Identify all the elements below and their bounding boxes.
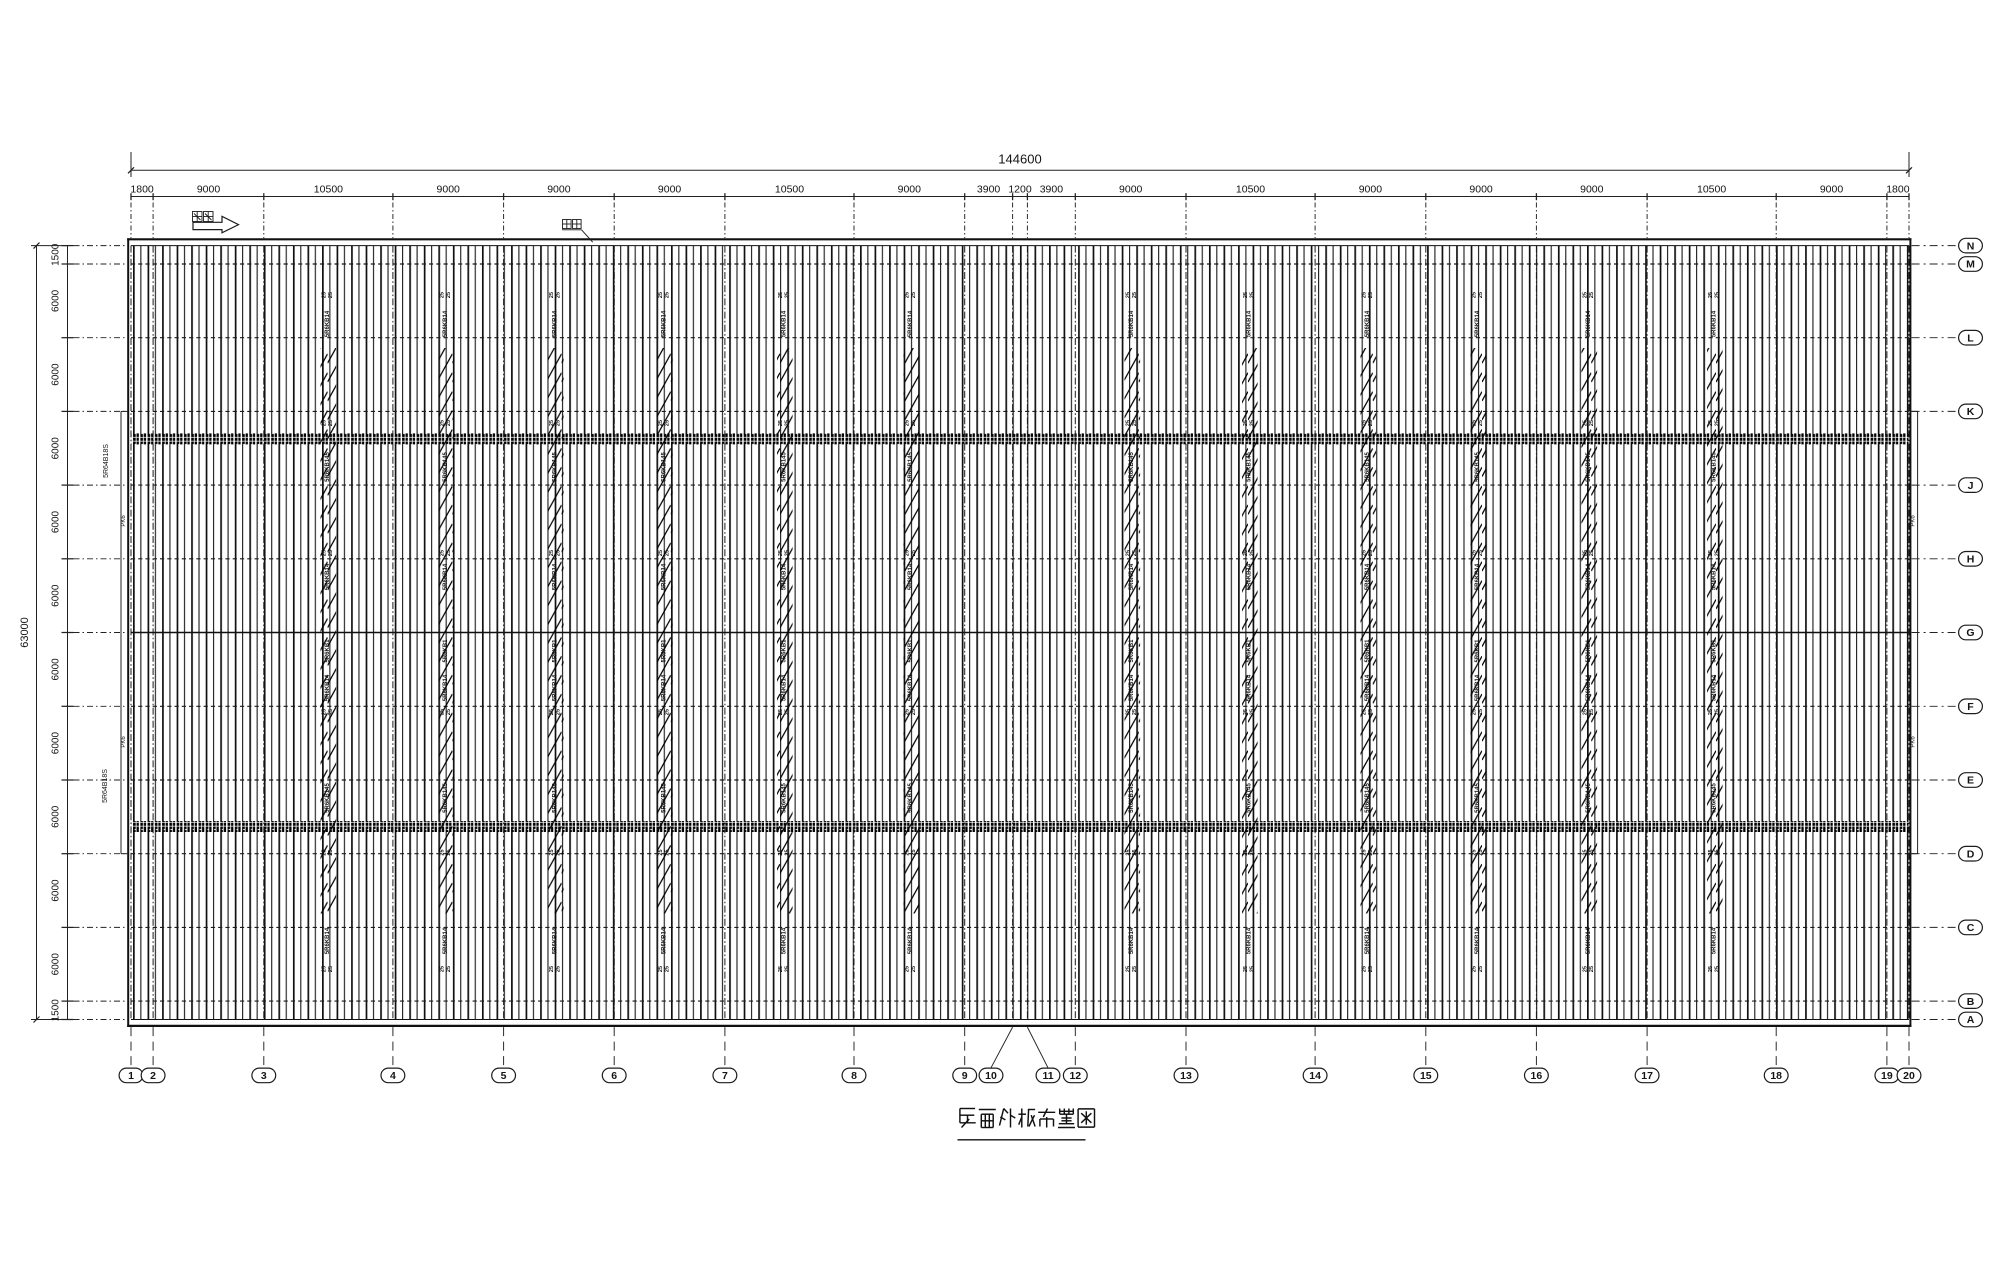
- svg-text:8: 8: [851, 1070, 857, 1082]
- svg-text:5R6KB145: 5R6KB145: [1365, 451, 1371, 481]
- svg-text:25: 25: [1715, 550, 1721, 556]
- svg-text:25: 25: [1478, 709, 1484, 715]
- svg-text:25: 25: [1589, 849, 1595, 855]
- svg-text:25: 25: [778, 849, 784, 855]
- svg-text:25: 25: [549, 420, 555, 426]
- svg-text:25: 25: [911, 420, 917, 426]
- svg-text:5R6KB14: 5R6KB14: [552, 310, 558, 337]
- svg-text:5R6KB14: 5R6KB14: [1365, 927, 1371, 954]
- svg-text:5R6KB145: 5R6KB145: [1246, 451, 1252, 481]
- svg-text:5R6KB14: 5R6KB14: [325, 563, 331, 590]
- svg-text:6000: 6000: [51, 953, 62, 976]
- svg-text:9000: 9000: [547, 184, 571, 196]
- svg-text:25: 25: [1126, 420, 1132, 426]
- svg-text:25: 25: [1708, 550, 1714, 556]
- svg-text:5R6KB145: 5R6KB145: [1129, 782, 1135, 812]
- svg-text:5R6KB14: 5R6KB14: [1475, 310, 1481, 337]
- svg-text:25: 25: [1126, 849, 1132, 855]
- svg-text:25: 25: [556, 420, 562, 426]
- svg-text:25: 25: [778, 709, 784, 715]
- svg-text:5R6KB14: 5R6KB14: [908, 563, 914, 590]
- svg-text:25: 25: [1250, 709, 1256, 715]
- svg-text:25: 25: [1472, 420, 1478, 426]
- svg-text:5R6KB145: 5R6KB145: [443, 782, 449, 812]
- svg-text:25: 25: [446, 420, 452, 426]
- svg-text:5R6KB1: 5R6KB1: [1586, 639, 1592, 663]
- svg-text:144600: 144600: [998, 152, 1041, 167]
- svg-text:25: 25: [440, 966, 446, 972]
- svg-text:25: 25: [328, 550, 334, 556]
- svg-text:5R6KB14: 5R6KB14: [552, 563, 558, 590]
- svg-text:9000: 9000: [658, 184, 682, 196]
- svg-text:5R6KB14: 5R6KB14: [1475, 927, 1481, 954]
- svg-text:5R6KB14: 5R6KB14: [1711, 563, 1717, 590]
- svg-text:25: 25: [1368, 709, 1374, 715]
- svg-text:5R6KB145: 5R6KB145: [1475, 782, 1481, 812]
- svg-text:5R6KB14: 5R6KB14: [781, 563, 787, 590]
- svg-text:6000: 6000: [51, 879, 62, 902]
- svg-text:25: 25: [665, 420, 671, 426]
- svg-text:25: 25: [1132, 292, 1138, 298]
- svg-text:25: 25: [778, 550, 784, 556]
- svg-text:63000: 63000: [19, 617, 31, 648]
- svg-text:25: 25: [1368, 420, 1374, 426]
- svg-text:25: 25: [1243, 709, 1249, 715]
- svg-text:H: H: [1967, 554, 1975, 566]
- svg-text:5R6KB145: 5R6KB145: [661, 451, 667, 481]
- svg-text:25: 25: [658, 966, 664, 972]
- svg-text:25: 25: [1583, 550, 1589, 556]
- svg-text:5R6KB14: 5R6KB14: [1711, 674, 1717, 701]
- svg-text:5R6KB14: 5R6KB14: [661, 674, 667, 701]
- svg-text:25: 25: [1583, 292, 1589, 298]
- svg-text:25: 25: [1589, 420, 1595, 426]
- svg-text:25: 25: [446, 550, 452, 556]
- svg-text:1500: 1500: [51, 999, 62, 1022]
- svg-text:25: 25: [556, 292, 562, 298]
- svg-text:10500: 10500: [775, 184, 804, 196]
- svg-text:25: 25: [785, 550, 791, 556]
- svg-text:6000: 6000: [51, 289, 62, 312]
- svg-text:5R6KB14: 5R6KB14: [552, 927, 558, 954]
- svg-text:M: M: [1966, 259, 1975, 271]
- svg-text:17: 17: [1641, 1070, 1653, 1082]
- svg-text:5R6KB14: 5R6KB14: [908, 674, 914, 701]
- svg-text:25: 25: [665, 550, 671, 556]
- svg-text:18: 18: [1770, 1070, 1782, 1082]
- svg-text:6000: 6000: [51, 437, 62, 460]
- svg-text:25: 25: [1368, 550, 1374, 556]
- svg-text:25: 25: [1243, 966, 1249, 972]
- svg-text:25: 25: [1715, 709, 1721, 715]
- svg-text:5R6KB1: 5R6KB1: [1129, 639, 1135, 663]
- svg-text:25: 25: [1589, 709, 1595, 715]
- svg-text:25: 25: [446, 849, 452, 855]
- svg-text:5R6KB145: 5R6KB145: [325, 782, 331, 812]
- svg-text:5R6KB145: 5R6KB145: [1586, 782, 1592, 812]
- svg-text:5R6KB14: 5R6KB14: [781, 674, 787, 701]
- svg-text:7: 7: [722, 1070, 728, 1082]
- svg-text:25: 25: [658, 292, 664, 298]
- svg-text:25: 25: [785, 420, 791, 426]
- svg-text:5R6KB145: 5R6KB145: [661, 782, 667, 812]
- svg-text:PK6: PK6: [1911, 515, 1917, 527]
- svg-text:25: 25: [1250, 966, 1256, 972]
- svg-text:25: 25: [1583, 966, 1589, 972]
- svg-text:9000: 9000: [437, 184, 461, 196]
- svg-text:25: 25: [549, 292, 555, 298]
- svg-text:6000: 6000: [51, 510, 62, 533]
- svg-text:25: 25: [905, 849, 911, 855]
- svg-text:25: 25: [778, 966, 784, 972]
- svg-text:11: 11: [1042, 1070, 1053, 1082]
- svg-text:L: L: [1967, 332, 1974, 344]
- svg-text:9000: 9000: [1469, 184, 1493, 196]
- svg-text:K: K: [1967, 406, 1975, 418]
- svg-text:25: 25: [322, 420, 328, 426]
- svg-text:25: 25: [1589, 550, 1595, 556]
- svg-text:25: 25: [1126, 966, 1132, 972]
- svg-text:25: 25: [911, 849, 917, 855]
- svg-text:5R6KB1: 5R6KB1: [781, 639, 787, 663]
- svg-text:5R6KB14: 5R6KB14: [1586, 563, 1592, 590]
- svg-text:C: C: [1967, 922, 1975, 934]
- svg-text:25: 25: [785, 292, 791, 298]
- svg-text:25: 25: [1478, 420, 1484, 426]
- svg-text:25: 25: [1362, 709, 1368, 715]
- svg-text:25: 25: [1478, 849, 1484, 855]
- svg-text:D: D: [1967, 848, 1975, 860]
- svg-text:25: 25: [556, 966, 562, 972]
- svg-text:25: 25: [440, 292, 446, 298]
- svg-text:25: 25: [556, 550, 562, 556]
- svg-text:25: 25: [1132, 550, 1138, 556]
- svg-text:5R6KB145: 5R6KB145: [1246, 782, 1252, 812]
- svg-text:4: 4: [390, 1070, 396, 1082]
- svg-text:25: 25: [556, 849, 562, 855]
- svg-text:6000: 6000: [51, 732, 62, 755]
- svg-text:25: 25: [1362, 420, 1368, 426]
- svg-text:25: 25: [1715, 966, 1721, 972]
- svg-text:25: 25: [911, 292, 917, 298]
- svg-text:25: 25: [1589, 292, 1595, 298]
- svg-text:20: 20: [1903, 1070, 1915, 1082]
- svg-text:25: 25: [322, 292, 328, 298]
- svg-text:5R6KB145: 5R6KB145: [908, 451, 914, 481]
- svg-text:25: 25: [1472, 292, 1478, 298]
- svg-text:5R6KB145: 5R6KB145: [443, 451, 449, 481]
- svg-text:PK6: PK6: [1911, 736, 1917, 748]
- svg-text:25: 25: [1250, 550, 1256, 556]
- svg-text:25: 25: [1243, 292, 1249, 298]
- svg-text:25: 25: [1472, 709, 1478, 715]
- svg-text:14: 14: [1309, 1070, 1321, 1082]
- svg-text:25: 25: [1243, 420, 1249, 426]
- svg-text:25: 25: [665, 966, 671, 972]
- svg-text:25: 25: [665, 849, 671, 855]
- svg-text:G: G: [1966, 627, 1974, 639]
- svg-text:25: 25: [911, 709, 917, 715]
- svg-text:25: 25: [446, 292, 452, 298]
- svg-text:25: 25: [1472, 550, 1478, 556]
- svg-text:J: J: [1968, 480, 1974, 492]
- svg-text:6000: 6000: [51, 805, 62, 828]
- svg-text:25: 25: [556, 709, 562, 715]
- svg-text:9000: 9000: [197, 184, 221, 196]
- svg-text:25: 25: [1132, 849, 1138, 855]
- svg-text:25: 25: [322, 849, 328, 855]
- svg-text:25: 25: [658, 709, 664, 715]
- svg-text:5R6KB145: 5R6KB145: [552, 782, 558, 812]
- svg-text:25: 25: [549, 550, 555, 556]
- svg-text:25: 25: [328, 849, 334, 855]
- svg-text:25: 25: [549, 966, 555, 972]
- svg-text:5R6KB145: 5R6KB145: [1475, 451, 1481, 481]
- svg-text:10500: 10500: [1697, 184, 1726, 196]
- svg-text:5R6KB1: 5R6KB1: [443, 639, 449, 663]
- svg-text:PK6: PK6: [121, 515, 127, 527]
- svg-text:5R6KB1: 5R6KB1: [1475, 639, 1481, 663]
- svg-text:5R6KB1: 5R6KB1: [1246, 639, 1252, 663]
- svg-text:5R6KB1: 5R6KB1: [325, 639, 331, 663]
- svg-text:25: 25: [328, 420, 334, 426]
- svg-text:25: 25: [322, 709, 328, 715]
- svg-text:5R6KB14: 5R6KB14: [661, 563, 667, 590]
- svg-text:25: 25: [905, 292, 911, 298]
- svg-text:5R6KB145: 5R6KB145: [1129, 451, 1135, 481]
- svg-text:25: 25: [905, 550, 911, 556]
- svg-text:5R6KB14: 5R6KB14: [1711, 927, 1717, 954]
- svg-text:25: 25: [328, 709, 334, 715]
- svg-text:25: 25: [1362, 849, 1368, 855]
- svg-text:25: 25: [1478, 966, 1484, 972]
- svg-text:5R6KB145: 5R6KB145: [1586, 451, 1592, 481]
- svg-text:1200: 1200: [1008, 184, 1032, 196]
- svg-text:25: 25: [1708, 849, 1714, 855]
- svg-text:25: 25: [1132, 966, 1138, 972]
- svg-text:5R6KB14: 5R6KB14: [661, 927, 667, 954]
- svg-text:5R6KB145: 5R6KB145: [1711, 451, 1717, 481]
- svg-text:5R64B18S: 5R64B18S: [102, 769, 109, 803]
- svg-text:5R6KB14: 5R6KB14: [443, 927, 449, 954]
- svg-text:25: 25: [658, 420, 664, 426]
- svg-text:5R64B18S: 5R64B18S: [103, 444, 110, 478]
- svg-text:5R6KB14: 5R6KB14: [1129, 927, 1135, 954]
- svg-text:5R6KB1: 5R6KB1: [1711, 639, 1717, 663]
- svg-text:5: 5: [501, 1070, 507, 1082]
- svg-text:6000: 6000: [51, 584, 62, 607]
- svg-text:25: 25: [1126, 292, 1132, 298]
- svg-text:N: N: [1967, 240, 1975, 252]
- svg-text:5R6KB14: 5R6KB14: [443, 674, 449, 701]
- svg-text:B: B: [1967, 996, 1975, 1008]
- svg-text:25: 25: [778, 292, 784, 298]
- svg-text:25: 25: [1708, 709, 1714, 715]
- svg-text:12: 12: [1069, 1070, 1081, 1082]
- svg-text:5R6KB14: 5R6KB14: [781, 927, 787, 954]
- svg-text:5R6KB14: 5R6KB14: [1246, 310, 1252, 337]
- svg-text:25: 25: [1715, 849, 1721, 855]
- svg-text:9000: 9000: [1580, 184, 1604, 196]
- svg-text:F: F: [1967, 701, 1974, 713]
- svg-text:5R6KB14: 5R6KB14: [1129, 674, 1135, 701]
- svg-text:25: 25: [1250, 292, 1256, 298]
- svg-text:25: 25: [1715, 292, 1721, 298]
- svg-text:13: 13: [1180, 1070, 1192, 1082]
- svg-text:25: 25: [1368, 966, 1374, 972]
- svg-text:1500: 1500: [51, 243, 62, 266]
- svg-text:25: 25: [1589, 966, 1595, 972]
- svg-text:5R6KB14: 5R6KB14: [1586, 674, 1592, 701]
- svg-text:3900: 3900: [1040, 184, 1064, 196]
- svg-text:5R6KB1: 5R6KB1: [661, 639, 667, 663]
- svg-text:25: 25: [911, 966, 917, 972]
- svg-text:1800: 1800: [1886, 184, 1910, 196]
- svg-text:25: 25: [1708, 966, 1714, 972]
- svg-text:25: 25: [328, 292, 334, 298]
- svg-text:3900: 3900: [977, 184, 1001, 196]
- svg-text:25: 25: [778, 420, 784, 426]
- svg-text:25: 25: [1132, 420, 1138, 426]
- svg-text:1: 1: [128, 1070, 134, 1082]
- svg-text:A: A: [1967, 1014, 1975, 1026]
- svg-text:5R6KB14: 5R6KB14: [781, 310, 787, 337]
- svg-text:5R6KB14: 5R6KB14: [1246, 927, 1252, 954]
- svg-text:25: 25: [1583, 420, 1589, 426]
- svg-text:5R6KB14: 5R6KB14: [1246, 674, 1252, 701]
- svg-text:25: 25: [658, 849, 664, 855]
- svg-text:25: 25: [1708, 420, 1714, 426]
- svg-text:2: 2: [150, 1070, 156, 1082]
- svg-text:25: 25: [1126, 550, 1132, 556]
- svg-text:25: 25: [1362, 550, 1368, 556]
- svg-text:25: 25: [911, 550, 917, 556]
- svg-text:25: 25: [1478, 550, 1484, 556]
- svg-text:25: 25: [1250, 849, 1256, 855]
- svg-text:5R6KB14: 5R6KB14: [1365, 674, 1371, 701]
- svg-text:5R6KB14: 5R6KB14: [661, 310, 667, 337]
- svg-text:5R6KB145: 5R6KB145: [1365, 782, 1371, 812]
- svg-text:10500: 10500: [1236, 184, 1265, 196]
- svg-text:25: 25: [1583, 849, 1589, 855]
- svg-text:25: 25: [785, 966, 791, 972]
- svg-text:25: 25: [1478, 292, 1484, 298]
- svg-text:5R6KB145: 5R6KB145: [781, 451, 787, 481]
- svg-text:5R6KB14: 5R6KB14: [552, 674, 558, 701]
- svg-text:25: 25: [905, 420, 911, 426]
- svg-text:25: 25: [658, 550, 664, 556]
- svg-text:19: 19: [1881, 1070, 1893, 1082]
- svg-text:25: 25: [1362, 292, 1368, 298]
- svg-text:5R6KB14: 5R6KB14: [1129, 563, 1135, 590]
- svg-text:5R6KB14: 5R6KB14: [1475, 674, 1481, 701]
- svg-text:25: 25: [1472, 849, 1478, 855]
- svg-text:5R6KB14: 5R6KB14: [325, 310, 331, 337]
- svg-text:25: 25: [1243, 849, 1249, 855]
- svg-text:25: 25: [446, 709, 452, 715]
- svg-text:9000: 9000: [1820, 184, 1844, 196]
- svg-text:3: 3: [261, 1070, 267, 1082]
- svg-text:5R6KB1: 5R6KB1: [552, 639, 558, 663]
- svg-text:5R6KB1: 5R6KB1: [1365, 639, 1371, 663]
- svg-text:25: 25: [785, 709, 791, 715]
- svg-text:25: 25: [905, 709, 911, 715]
- svg-text:5R6KB14: 5R6KB14: [908, 927, 914, 954]
- svg-text:6000: 6000: [51, 658, 62, 681]
- svg-text:25: 25: [665, 709, 671, 715]
- svg-text:16: 16: [1531, 1070, 1543, 1082]
- svg-text:25: 25: [440, 709, 446, 715]
- svg-text:E: E: [1967, 775, 1974, 787]
- svg-text:25: 25: [446, 966, 452, 972]
- svg-text:5R6KB145: 5R6KB145: [1711, 782, 1717, 812]
- svg-text:25: 25: [1368, 849, 1374, 855]
- svg-text:5R6KB14: 5R6KB14: [1586, 310, 1592, 337]
- svg-text:5R6KB14: 5R6KB14: [1365, 310, 1371, 337]
- svg-text:5R6KB145: 5R6KB145: [552, 451, 558, 481]
- svg-text:25: 25: [1472, 966, 1478, 972]
- svg-text:25: 25: [1368, 292, 1374, 298]
- svg-text:25: 25: [440, 420, 446, 426]
- svg-text:25: 25: [322, 966, 328, 972]
- svg-text:5R6KB14: 5R6KB14: [908, 310, 914, 337]
- svg-text:5R6KB14: 5R6KB14: [1475, 563, 1481, 590]
- svg-text:25: 25: [1583, 709, 1589, 715]
- svg-text:25: 25: [1362, 966, 1368, 972]
- svg-text:5R6KB145: 5R6KB145: [325, 451, 331, 481]
- svg-text:25: 25: [1250, 420, 1256, 426]
- svg-text:5R6KB14: 5R6KB14: [325, 927, 331, 954]
- svg-text:25: 25: [665, 292, 671, 298]
- svg-text:25: 25: [322, 550, 328, 556]
- svg-text:25: 25: [785, 849, 791, 855]
- svg-text:PK6: PK6: [121, 736, 127, 748]
- svg-text:6000: 6000: [51, 363, 62, 386]
- svg-text:25: 25: [1715, 420, 1721, 426]
- svg-text:5R6KB145: 5R6KB145: [781, 782, 787, 812]
- svg-text:25: 25: [1132, 709, 1138, 715]
- svg-text:25: 25: [440, 550, 446, 556]
- svg-text:9000: 9000: [1119, 184, 1143, 196]
- svg-text:5R6KB14: 5R6KB14: [1711, 310, 1717, 337]
- svg-text:25: 25: [1243, 550, 1249, 556]
- svg-text:15: 15: [1420, 1070, 1432, 1082]
- svg-text:5R6KB14: 5R6KB14: [443, 563, 449, 590]
- svg-text:5R6KB14: 5R6KB14: [1129, 310, 1135, 337]
- svg-text:10500: 10500: [314, 184, 343, 196]
- svg-text:25: 25: [1708, 292, 1714, 298]
- svg-text:6: 6: [611, 1070, 617, 1082]
- svg-text:5R6KB1: 5R6KB1: [908, 639, 914, 663]
- svg-text:9000: 9000: [898, 184, 922, 196]
- svg-text:5R6KB14: 5R6KB14: [325, 674, 331, 701]
- svg-text:25: 25: [905, 966, 911, 972]
- svg-text:25: 25: [328, 966, 334, 972]
- svg-text:9: 9: [962, 1070, 968, 1082]
- svg-text:5R6KB14: 5R6KB14: [443, 310, 449, 337]
- svg-text:9000: 9000: [1359, 184, 1383, 196]
- svg-text:5R6KB145: 5R6KB145: [908, 782, 914, 812]
- svg-text:5R6KB14: 5R6KB14: [1586, 927, 1592, 954]
- svg-text:1800: 1800: [130, 184, 154, 196]
- svg-text:5R6KB14: 5R6KB14: [1365, 563, 1371, 590]
- svg-text:25: 25: [549, 709, 555, 715]
- svg-text:25: 25: [549, 849, 555, 855]
- svg-text:10: 10: [985, 1070, 997, 1082]
- svg-text:5R6KB14: 5R6KB14: [1246, 563, 1252, 590]
- svg-text:25: 25: [1126, 709, 1132, 715]
- svg-text:25: 25: [440, 849, 446, 855]
